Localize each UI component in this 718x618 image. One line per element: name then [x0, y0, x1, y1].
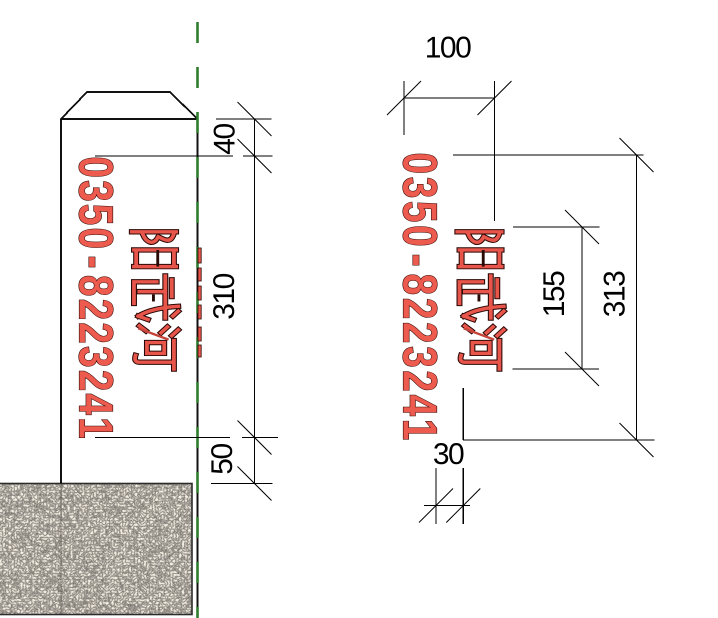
svg-text:2: 2	[393, 322, 446, 343]
svg-text:155: 155	[538, 271, 571, 317]
svg-text:3: 3	[69, 180, 122, 201]
svg-text:2: 2	[69, 299, 122, 320]
svg-text:2: 2	[69, 322, 122, 343]
svg-text:3: 3	[393, 177, 446, 198]
svg-text:1: 1	[69, 417, 122, 438]
svg-text:-: -	[69, 256, 122, 269]
svg-text:0: 0	[393, 225, 446, 246]
svg-text:30: 30	[433, 438, 464, 471]
svg-text:2: 2	[393, 298, 446, 319]
svg-text:310: 310	[208, 273, 241, 319]
svg-text:1: 1	[393, 419, 446, 440]
svg-text:2: 2	[69, 370, 122, 391]
svg-text:8: 8	[69, 275, 122, 296]
svg-text:0: 0	[69, 157, 122, 178]
svg-text:0: 0	[69, 228, 122, 249]
svg-text:4: 4	[69, 394, 122, 416]
svg-text:2: 2	[393, 370, 446, 391]
svg-text:313: 313	[599, 271, 632, 317]
svg-text:5: 5	[393, 201, 446, 222]
svg-text:-: -	[393, 254, 446, 267]
svg-text:0: 0	[393, 153, 446, 174]
svg-text:5: 5	[69, 204, 122, 225]
svg-text:4: 4	[393, 395, 446, 417]
svg-text:100: 100	[425, 32, 471, 65]
svg-text:50: 50	[206, 444, 239, 475]
svg-text:40: 40	[209, 124, 242, 155]
svg-text:3: 3	[393, 346, 446, 367]
svg-text:3: 3	[69, 346, 122, 367]
svg-text:8: 8	[393, 274, 446, 295]
